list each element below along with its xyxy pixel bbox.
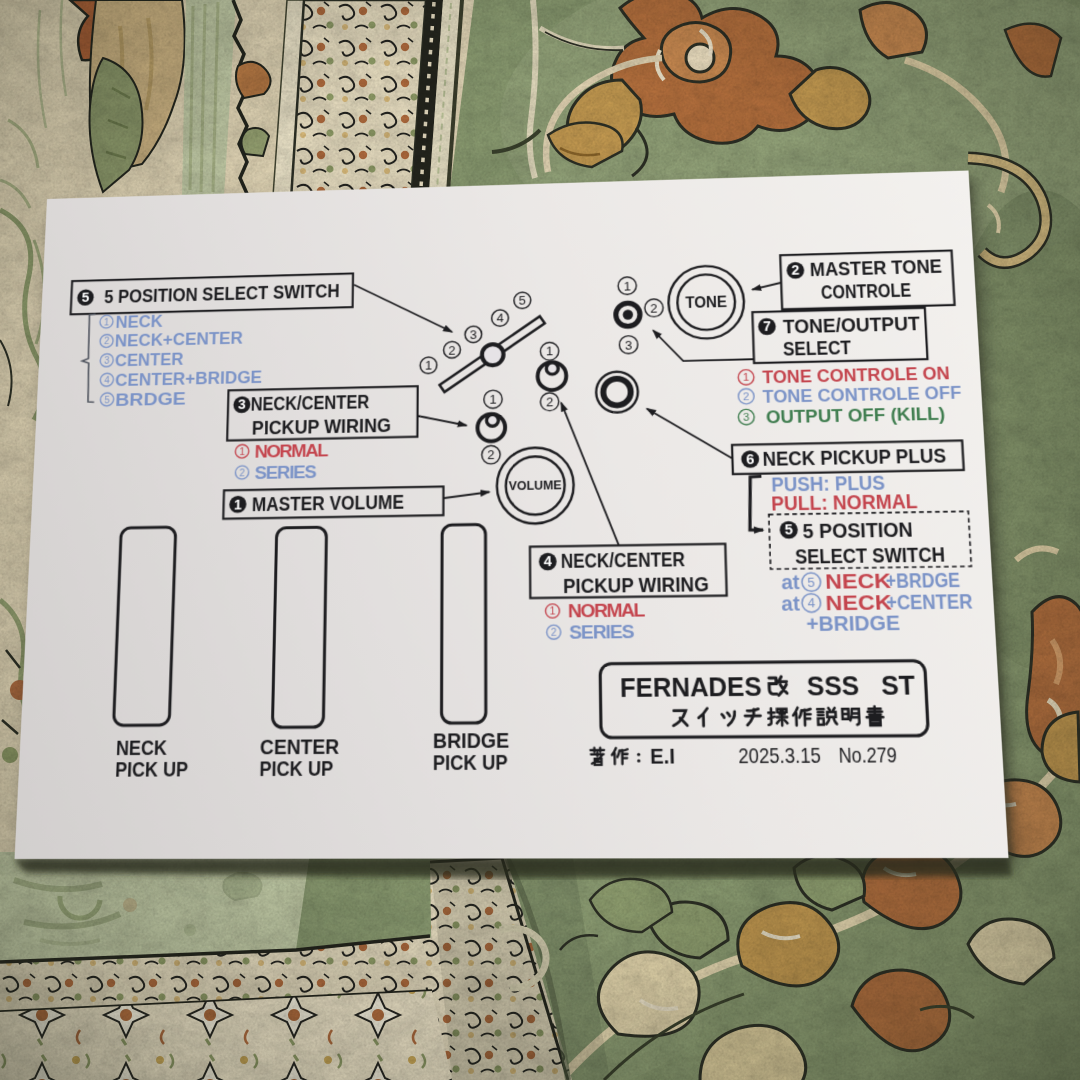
svg-text:SERIES: SERIES	[254, 461, 317, 483]
svg-text:1: 1	[239, 446, 245, 457]
svg-text:BRDGE: BRDGE	[115, 390, 186, 409]
svg-text:2: 2	[448, 343, 455, 358]
svg-text:1: 1	[743, 372, 750, 384]
svg-text:No.279: No.279	[838, 744, 897, 768]
svg-text:PICK UP: PICK UP	[433, 750, 508, 775]
svg-text:1: 1	[425, 358, 433, 373]
svg-text:4: 4	[807, 596, 816, 611]
svg-text:NECK+CENTER: NECK+CENTER	[114, 330, 243, 351]
svg-text:3: 3	[743, 412, 750, 424]
svg-text:5: 5	[81, 290, 89, 306]
svg-text:MASTER VOLUME: MASTER VOLUME	[252, 491, 404, 516]
svg-text:5 POSITION: 5 POSITION	[802, 519, 913, 544]
svg-text:1: 1	[234, 496, 242, 512]
svg-text:CENTER+BRIDGE: CENTER+BRIDGE	[115, 369, 262, 390]
svg-text:4: 4	[544, 553, 553, 570]
svg-text:CONTROLE: CONTROLE	[821, 280, 912, 305]
svg-text:NECK/CENTER: NECK/CENTER	[250, 391, 369, 416]
svg-text:5: 5	[519, 293, 527, 308]
svg-text:NORMAL: NORMAL	[254, 440, 328, 462]
svg-text:1: 1	[550, 606, 556, 617]
svg-text:5 POSITION SELECT SWITCH: 5 POSITION SELECT SWITCH	[104, 280, 340, 308]
svg-text:4: 4	[104, 375, 110, 386]
svg-text:2: 2	[743, 392, 750, 404]
svg-text:2: 2	[650, 301, 658, 316]
svg-text:5: 5	[807, 576, 816, 591]
svg-text:PICKUP WIRING: PICKUP WIRING	[563, 574, 709, 599]
svg-text:at: at	[781, 592, 800, 615]
svg-text:4: 4	[496, 311, 504, 326]
svg-text:2: 2	[791, 262, 800, 278]
svg-text:SELECT SWITCH: SELECT SWITCH	[795, 543, 946, 569]
svg-text:PULL: NORMAL: PULL: NORMAL	[771, 491, 918, 516]
svg-text:PICK UP: PICK UP	[259, 756, 333, 781]
svg-text:at: at	[781, 571, 800, 594]
svg-text:NECK/CENTER: NECK/CENTER	[561, 549, 686, 574]
svg-text:NECK PICKUP PLUS: NECK PICKUP PLUS	[762, 445, 946, 472]
svg-text:VOLUME: VOLUME	[509, 480, 562, 494]
svg-text:2: 2	[551, 627, 557, 638]
svg-text:2025.3.15: 2025.3.15	[738, 744, 821, 768]
svg-text:2: 2	[239, 467, 245, 478]
svg-text:1: 1	[623, 279, 631, 294]
svg-text:FERNADES: FERNADES	[620, 672, 762, 703]
svg-text:+CENTER: +CENTER	[886, 590, 973, 614]
svg-text:1: 1	[546, 344, 554, 359]
svg-text:7: 7	[763, 318, 772, 334]
svg-text:NORMAL: NORMAL	[568, 600, 646, 622]
svg-text:NECK: NECK	[115, 313, 163, 332]
svg-text:SERIES: SERIES	[569, 621, 635, 643]
svg-text:3: 3	[238, 397, 246, 413]
svg-text:SELECT: SELECT	[783, 337, 852, 361]
svg-text:TONE/OUTPUT: TONE/OUTPUT	[783, 313, 921, 339]
svg-text:5: 5	[784, 521, 793, 538]
svg-text:PICKUP WIRING: PICKUP WIRING	[252, 415, 391, 440]
svg-text:2: 2	[487, 447, 494, 462]
svg-text:1: 1	[489, 392, 497, 407]
svg-text:OUTPUT OFF (KILL): OUTPUT OFF (KILL)	[766, 403, 946, 427]
svg-text:1: 1	[104, 317, 110, 327]
svg-text:5: 5	[104, 394, 110, 405]
svg-text:CENTER: CENTER	[115, 351, 185, 370]
svg-text:SSS: SSS	[806, 671, 860, 702]
svg-text:+BRIDGE: +BRIDGE	[806, 612, 901, 636]
svg-text:2: 2	[546, 394, 553, 409]
svg-text:ST: ST	[881, 670, 917, 701]
svg-text:TONE: TONE	[685, 294, 727, 313]
svg-text:2: 2	[104, 336, 110, 346]
svg-text:PICK UP: PICK UP	[115, 757, 189, 781]
svg-text:MASTER TONE: MASTER TONE	[810, 256, 943, 282]
svg-text:E.I: E.I	[650, 745, 675, 768]
svg-text:3: 3	[625, 337, 633, 352]
svg-text:3: 3	[470, 327, 478, 342]
svg-text:3: 3	[104, 355, 110, 366]
svg-text:6: 6	[746, 451, 755, 468]
